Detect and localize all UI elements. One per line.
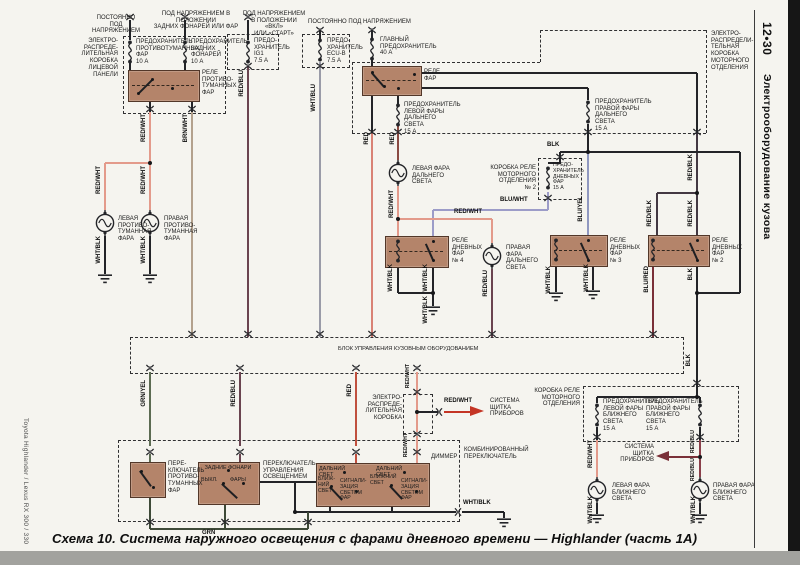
wl-red-wht-lowl: RED/WHT xyxy=(588,440,595,468)
right-margin-header: 12•30 Электрооборудование кузова xyxy=(758,22,776,240)
wire-segment xyxy=(432,210,434,236)
wire-segment xyxy=(696,265,697,397)
wl-red-blu-lowr2: RED/BLU xyxy=(691,458,697,481)
lamp-icon xyxy=(94,210,116,236)
lbl-fuse-drl: ПРЕДО- ХРАНИТЕЛЬ ДНЕВНЫХ ФАР 15 А xyxy=(553,163,579,192)
wl-wht-blk-r4c: WHT/BLK xyxy=(423,296,430,324)
dim-low-left: БЛИЖ- НИЙ СВЕТ xyxy=(318,477,336,494)
page-edge-bar xyxy=(788,0,800,551)
wire-segment xyxy=(592,265,593,290)
lbl-lh-low-lamp: ЛЕВАЯ ФАРА БЛИЖНЕГО СВЕТА xyxy=(612,483,664,503)
connector-icon xyxy=(187,330,197,338)
manual-page: ПОСТОЯННО ПОД НАПРЯЖЕНИЕМПОД НАПРЯЖЕНИЕМ… xyxy=(0,0,800,565)
wire-segment xyxy=(555,265,556,292)
sw-pos-off: ВЫКЛ. xyxy=(201,477,221,483)
wire-segment xyxy=(294,482,295,512)
lbl-relay-box-no2: КОРОБКА РЕЛЕ МОТОРНОГО ОТДЕЛЕНИЯ № 2 xyxy=(488,165,536,192)
lbl-fuse-ig1: ПРЕДО- ХРАНИТЕЛЬ IG1 7.5 А xyxy=(254,38,284,65)
fuse-icon xyxy=(367,37,377,61)
wire-segment xyxy=(433,209,548,211)
connector-icon xyxy=(412,430,422,438)
wl-wht-blk-fog-l: WHT/BLK xyxy=(96,236,103,264)
wire-segment xyxy=(104,236,105,274)
wl-red-blu-highr: RED/BLU xyxy=(483,270,490,297)
connector-icon xyxy=(351,364,361,372)
wire-segment xyxy=(104,163,106,210)
connector-icon xyxy=(367,26,377,34)
relay-contact-dashline xyxy=(554,250,602,251)
connector-icon xyxy=(412,364,422,372)
wire-segment xyxy=(444,411,470,413)
wire-segment xyxy=(295,511,456,512)
connector-icon xyxy=(145,364,155,372)
connector-icon xyxy=(243,62,253,70)
wire-segment xyxy=(696,133,698,193)
wl-blu-red: BLU/RED xyxy=(644,266,651,293)
connector-icon xyxy=(235,364,245,372)
dim-flash-left: СИГНАЛИ- ЗАЦИЯ СВЕТОМ ФАР xyxy=(340,479,364,502)
fuse-icon xyxy=(393,103,403,127)
terminal-dot xyxy=(696,239,699,242)
wire-segment xyxy=(432,266,433,293)
wire-segment xyxy=(420,87,588,88)
connector-icon xyxy=(367,330,377,338)
hdr-power-tail-position: ПОД НАПРЯЖЕНИЕМ В ПОЛОЖЕНИИ ЗАДНИХ ФОНАР… xyxy=(150,11,242,31)
lbl-rh-low-lamp: ПРАВАЯ ФАРА БЛИЖНЕГО СВЕТА xyxy=(713,483,765,503)
wl-red-wht-fog-l: RED/WHT xyxy=(96,166,103,194)
fuse-icon xyxy=(695,403,705,427)
wire-segment xyxy=(491,269,493,337)
lbl-dimmer: ДИММЕР xyxy=(431,454,461,461)
lbl-rh-fog-lamp: ПРАВАЯ ПРОТИВО- ТУМАННАЯ ФАРА xyxy=(164,216,198,243)
wire-segment xyxy=(587,152,589,235)
lbl-fog-relay: РЕЛЕ ПРОТИВО- ТУМАННЫХ ФАР xyxy=(202,70,230,97)
terminal-dot xyxy=(432,240,435,243)
chapter-title: Электрооборудование кузова xyxy=(761,60,773,240)
left-margin-text: Toyota Highlander / Lexus RX 300 / 330 xyxy=(22,418,29,544)
connector-icon xyxy=(555,153,565,161)
lbl-rh-high-lamp: ПРАВАЯ ФАРА ДАЛЬНЕГО СВЕТА xyxy=(506,245,540,272)
wl-blu-yel: BLU/YEL xyxy=(578,196,585,222)
connector-icon xyxy=(435,407,443,417)
connector-icon xyxy=(692,128,702,136)
wire-segment xyxy=(597,396,700,397)
wire-segment xyxy=(398,292,433,293)
junction-dot xyxy=(396,217,400,221)
terminal-dot xyxy=(696,259,699,262)
page-number: 12•30 xyxy=(760,22,774,55)
dashed-edge-engine-box xyxy=(540,30,706,31)
connector-icon xyxy=(454,507,462,517)
wl-red-2: RED xyxy=(390,132,397,145)
dim-flash-right: СИГНАЛИ- ЗАЦИЯ СВЕТОМ ФАР xyxy=(401,479,425,502)
lbl-drl-relay-3: РЕЛЕ ДНЕВНЫХ ФАР № 3 xyxy=(610,238,640,265)
wire-segment xyxy=(150,528,308,530)
wire-segment xyxy=(697,292,740,293)
arrow-left-icon xyxy=(656,451,669,461)
wl-red-dim: RED xyxy=(347,384,354,397)
lbl-body-ecu: БЛОК УПРАВЛЕНИЯ КУЗОВНЫМ ОБОРУДОВАНИЕМ xyxy=(338,346,588,352)
junction-dot xyxy=(695,291,699,295)
terminal-dot xyxy=(140,470,143,473)
wire-segment xyxy=(397,266,398,293)
wire-segment xyxy=(420,72,697,73)
dashed-edge-engine-box xyxy=(352,62,540,63)
fuse-icon xyxy=(393,239,403,263)
lbl-drl-relay-4: РЕЛЕ ДНЕВНЫХ ФАР № 4 xyxy=(452,238,482,265)
wl-red-blk-1: RED/BLK xyxy=(688,154,695,181)
terminal-dot xyxy=(413,73,416,76)
wire-segment xyxy=(696,193,698,235)
wire-segment xyxy=(652,265,654,337)
wl-wht-blk-lowr: WHT/BLK xyxy=(691,496,698,524)
wire-segment xyxy=(656,193,658,235)
lbl-light-control-switch: ПЕРЕКЛЮЧАТЕЛЬ УПРАВЛЕНИЯ ОСВЕЩЕНИЕМ xyxy=(263,461,311,481)
fuse-icon xyxy=(583,100,593,124)
connector-icon xyxy=(351,448,361,456)
wire-segment xyxy=(149,112,151,164)
connector-icon xyxy=(412,448,422,456)
relay-contact-dashline xyxy=(652,250,704,251)
junction-dot xyxy=(586,150,590,154)
wl-red-blu-lowr1: RED/BLU xyxy=(691,430,697,453)
ground-icon xyxy=(142,274,158,284)
wl-red-1: RED xyxy=(364,132,371,145)
wire-segment xyxy=(462,511,504,512)
connector-icon xyxy=(583,128,593,136)
lbl-fuse-lh-high: ПРЕДОХРАНИТЕЛЬ ЛЕВОЙ ФАРЫ ДАЛЬНЕГО СВЕТА… xyxy=(404,102,454,136)
lbl-fuse-ecub: ПРЕДО- ХРАНИТЕЛЬ ECU-B 7.5 А xyxy=(327,38,357,65)
wl-blk-down: BLK xyxy=(686,354,693,366)
terminal-dot xyxy=(397,87,400,90)
wl-red-blk-2: RED/BLK xyxy=(647,200,654,227)
wire-segment xyxy=(105,162,151,164)
lbl-fuse-foglamp: ПРЕДОХРАНИТЕЛЬ ПРОТИВОТУМАННЫХ ФАР 10 А xyxy=(136,39,186,66)
terminal-dot xyxy=(222,482,225,485)
wl-red-wht-1: RED/WHT xyxy=(141,114,148,142)
lbl-fog-switch: ПЕРЕ- КЛЮЧАТЕЛЬ ПРОТИВО- ТУМАННЫХ ФАР xyxy=(168,461,202,495)
bottom-page-edge xyxy=(0,551,800,565)
wire-segment xyxy=(491,219,493,243)
connector-icon xyxy=(648,330,658,338)
wl-wht-blu: WHT/BLU xyxy=(311,84,318,112)
wire-segment xyxy=(239,372,241,446)
junction-dot xyxy=(431,291,435,295)
dashed-edge-engine-box xyxy=(706,30,707,133)
wl-wht-blk-r4b: WHT/BLK xyxy=(423,264,430,292)
wire-segment xyxy=(587,88,588,100)
wl-wht-blk-r4a: WHT/BLK xyxy=(388,264,395,292)
wl-red-blu-top: RED/BLU xyxy=(239,70,246,97)
lbl-lh-high-lamp: ЛЕВАЯ ФАРА ДАЛЬНЕГО СВЕТА xyxy=(412,166,464,186)
connector-icon xyxy=(487,330,497,338)
wire-segment xyxy=(696,73,697,133)
wire-segment xyxy=(319,62,321,337)
wire-segment xyxy=(699,503,700,514)
wl-wht-blk-r3a: WHT/BLK xyxy=(546,266,553,294)
lbl-engine-junction-box: ЭЛЕКТРО- РАСПРЕДЕЛИ- ТЕЛЬНАЯ КОРОБКА МОТ… xyxy=(711,31,753,71)
lbl-fuse-lh-low: ПРЕДОХРАНИТЕЛЬ ЛЕВОЙ ФАРЫ БЛИЖНЕГО СВЕТА… xyxy=(603,399,651,433)
relay-box-fog-relay xyxy=(128,70,200,102)
wl-red-wht-arrow: RED/WHT xyxy=(444,398,472,405)
terminal-dot xyxy=(152,486,155,489)
connector-icon xyxy=(220,518,230,526)
junction-dot xyxy=(148,161,152,165)
connector-icon xyxy=(235,448,245,456)
terminal-dot xyxy=(137,92,140,95)
right-margin-rule xyxy=(754,10,755,548)
wl-wht-blk-r3b: WHT/BLK xyxy=(584,264,591,292)
wl-grn-yel: GRN/YEL xyxy=(141,380,148,407)
wire-segment xyxy=(149,372,151,446)
figure-caption: Схема 10. Система наружного освещения с … xyxy=(52,531,697,546)
fuse-icon xyxy=(551,238,561,262)
wl-blu-wht: BLU/WHT xyxy=(500,197,528,204)
wl-wht-blk-lowl: WHT/BLK xyxy=(588,496,595,524)
arrow-right-icon xyxy=(470,406,484,416)
connector-icon xyxy=(145,105,155,113)
terminal-dot xyxy=(371,71,374,74)
lamp-icon xyxy=(387,160,409,186)
dim-low-right: БЛИЖНИЙ СВЕТ xyxy=(370,475,396,487)
terminal-dot xyxy=(587,239,590,242)
connector-icon xyxy=(145,448,155,456)
connector-icon xyxy=(315,62,325,70)
wire-segment xyxy=(258,481,316,482)
dashed-edge-engine-box xyxy=(540,30,541,62)
connector-icon xyxy=(412,388,422,396)
terminal-dot xyxy=(171,87,174,90)
wl-wht-blk-fog-r: WHT/BLK xyxy=(141,236,148,264)
wl-red-wht-high: RED/WHT xyxy=(389,190,396,218)
fuse-icon xyxy=(648,238,658,262)
wire-segment xyxy=(398,218,492,220)
connector-icon xyxy=(187,105,197,113)
wire-segment xyxy=(739,152,740,293)
connector-icon xyxy=(315,330,325,338)
lbl-fuse-rh-high: ПРЕДОХРАНИТЕЛЬ ПРАВОЙ ФАРЫ ДАЛЬНЕГО СВЕТ… xyxy=(595,99,645,133)
terminal-dot xyxy=(432,259,435,262)
wl-blk-bus: BLK xyxy=(547,142,559,149)
lbl-drl-relay-2: РЕЛЕ ДНЕВНЫХ ФАР № 2 xyxy=(712,238,742,265)
sw-pos-tail: ЗАДНИЕ ФОНАРИ xyxy=(200,465,256,471)
wl-red-wht-jb1: RED/WHT xyxy=(406,364,412,388)
terminal-dot xyxy=(383,85,386,88)
connector-icon xyxy=(315,26,325,34)
lbl-gauge-system-bottom: СИСТЕМА ЩИТКА ПРИБОРОВ xyxy=(612,444,654,464)
lbl-ip-junction-box: ЭЛЕКТРО- РАСПРЕДЕ- ЛИТЕЛЬНАЯ КОРОБКА ЛИЦ… xyxy=(62,38,118,78)
wire-segment xyxy=(355,372,357,446)
relay-contact-dashline xyxy=(366,80,416,81)
ground-icon xyxy=(496,518,512,528)
wire-segment xyxy=(657,192,697,194)
relay-contact-dashline xyxy=(132,85,194,86)
wl-blk-r2: BLK xyxy=(688,268,695,280)
wire-segment xyxy=(596,440,598,477)
lbl-main-fuse: ГЛАВНЫЙ ПРЕДОХРАНИТЕЛЬ 40 А xyxy=(380,37,432,57)
lbl-fuse-rh-low: ПРЕДОХРАНИТЕЛЬ ПРАВОЙ ФАРЫ БЛИЖНЕГО СВЕТ… xyxy=(646,399,694,433)
connector-icon xyxy=(692,379,702,387)
fuse-icon xyxy=(592,403,602,427)
terminal-dot xyxy=(151,78,154,81)
lbl-combination-switch: КОМБИНИРОВАННЫЙ ПЕРЕКЛЮЧАТЕЛЬ xyxy=(464,447,528,460)
wl-red-wht-bridge: RED/WHT xyxy=(454,209,482,216)
junction-dot xyxy=(293,510,297,514)
hdr-constant-power-left: ПОСТОЯННО ПОД НАПРЯЖЕНИЕМ xyxy=(86,15,146,35)
wl-red-blk-3: RED/BLK xyxy=(688,200,695,227)
wl-brn-wht: BRN/WHT xyxy=(183,114,190,142)
fuse-icon xyxy=(315,38,325,62)
wire-segment xyxy=(247,66,249,337)
wl-wht-blk-combo: WHT/BLK xyxy=(463,500,491,507)
junction-dot xyxy=(695,191,699,195)
ground-icon xyxy=(97,274,113,284)
hdr-power-on-start: ПОД НАПРЯЖЕНИЕМ В ПОЛОЖЕНИИ «ВКЛ» ИЛИ «С… xyxy=(242,11,306,38)
sw-pos-head: ФАРЫ xyxy=(230,477,250,483)
wire-segment xyxy=(596,503,597,514)
terminal-dot xyxy=(587,259,590,262)
junction-dot xyxy=(698,455,702,459)
connector-icon xyxy=(543,194,553,202)
lbl-fuse-tail: ПРЕДОХРАНИТЕЛЬ ЗАДНИХ ФОНАРЕЙ 10 А xyxy=(191,39,237,66)
wl-red-wht-jb2: RED/WHT xyxy=(404,433,410,457)
connector-icon xyxy=(303,518,313,526)
junction-dot xyxy=(415,410,419,414)
connector-icon xyxy=(243,330,253,338)
wl-red-blu-sw: RED/BLU xyxy=(231,380,238,407)
wire-segment xyxy=(149,164,151,210)
lbl-jb-small: ЭЛЕКТРО- РАСПРЕДЕ- ЛИТЕЛЬНАЯ КОРОБКА xyxy=(360,395,402,422)
hdr-constant-power-right: ПОСТОЯННО ПОД НАПРЯЖЕНИЕМ xyxy=(308,19,428,26)
wire-segment xyxy=(416,412,418,432)
fuse-icon xyxy=(543,166,553,190)
dashed-edge-engine-box xyxy=(352,62,353,133)
lbl-gauge-system-top: СИСТЕМА ЩИТКА ПРИБОРОВ xyxy=(490,398,530,418)
wire-segment xyxy=(397,186,399,236)
wiring-diagram: ПОСТОЯННО ПОД НАПРЯЖЕНИЕМПОД НАПРЯЖЕНИЕМ… xyxy=(0,0,800,565)
lamp-icon xyxy=(481,243,503,269)
lbl-relay-box-bottom: КОРОБКА РЕЛЕ МОТОРНОГО ОТДЕЛЕНИЯ xyxy=(532,388,580,408)
lbl-headlamp-relay: РЕЛЕ ФАР xyxy=(424,69,448,82)
wire-segment xyxy=(371,133,373,337)
connector-icon xyxy=(145,518,155,526)
fuse-icon xyxy=(125,40,135,64)
wl-red-wht-fog-r: RED/WHT xyxy=(141,166,148,194)
